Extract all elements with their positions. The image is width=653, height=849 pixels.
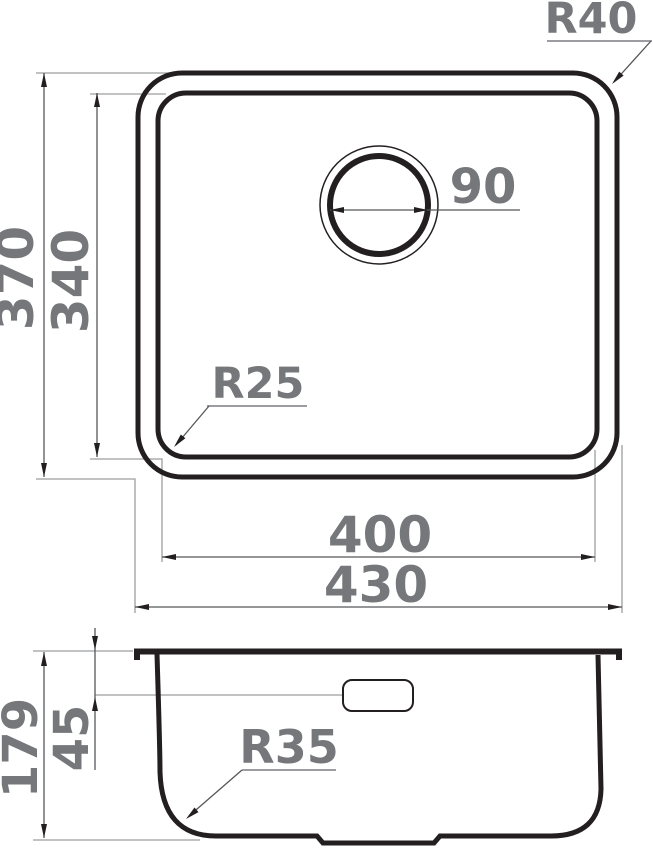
arrowhead-45-top — [92, 636, 98, 650]
drain-hole-outline — [330, 156, 428, 254]
dim-label-drain-diameter: 90 — [450, 159, 517, 215]
dim-label-outer-width: 430 — [324, 556, 428, 614]
arrowhead-400-right — [581, 554, 595, 560]
ext-line-outer-bottom-left — [36, 479, 135, 613]
drain-flange-outline — [320, 146, 438, 264]
dim-label-inner-height: 340 — [42, 229, 100, 333]
side-view: 179 45 R35 — [0, 628, 619, 843]
arrowhead-179-bottom — [41, 824, 47, 838]
dim-label-total-depth: 179 — [0, 698, 49, 798]
leader-line-r35 — [189, 770, 242, 816]
arrowhead-340-top — [94, 93, 100, 107]
arrowhead-430-right — [608, 604, 622, 610]
ext-line-inner-bottom-left — [90, 459, 162, 562]
overflow-opening-outline — [343, 680, 413, 711]
dim-label-inner-corner-radius: R25 — [212, 359, 305, 409]
arrowhead-340-bottom — [94, 443, 100, 457]
arrowhead-370-bottom — [41, 463, 47, 477]
sink-basin-profile — [157, 654, 601, 843]
arrowhead-179-top — [41, 652, 47, 666]
arrowhead-430-left — [135, 604, 149, 610]
dim-label-bottom-corner-radius: R35 — [239, 720, 338, 774]
sink-outer-rim-outline — [138, 73, 617, 477]
drawing-canvas: 90 R40 R25 370 340 400 430 — [0, 0, 653, 849]
arrowhead-370-top — [41, 73, 47, 87]
dim-label-overflow-depth: 45 — [44, 705, 100, 772]
sink-rim-profile — [137, 652, 619, 661]
dim-label-outer-height: 370 — [0, 226, 45, 330]
arrowhead-400-left — [162, 554, 176, 560]
top-view: 90 R40 R25 370 340 400 430 — [0, 0, 652, 614]
dim-label-outer-corner-radius: R40 — [545, 0, 638, 44]
sink-dimension-drawing: 90 R40 R25 370 340 400 430 — [0, 0, 653, 849]
